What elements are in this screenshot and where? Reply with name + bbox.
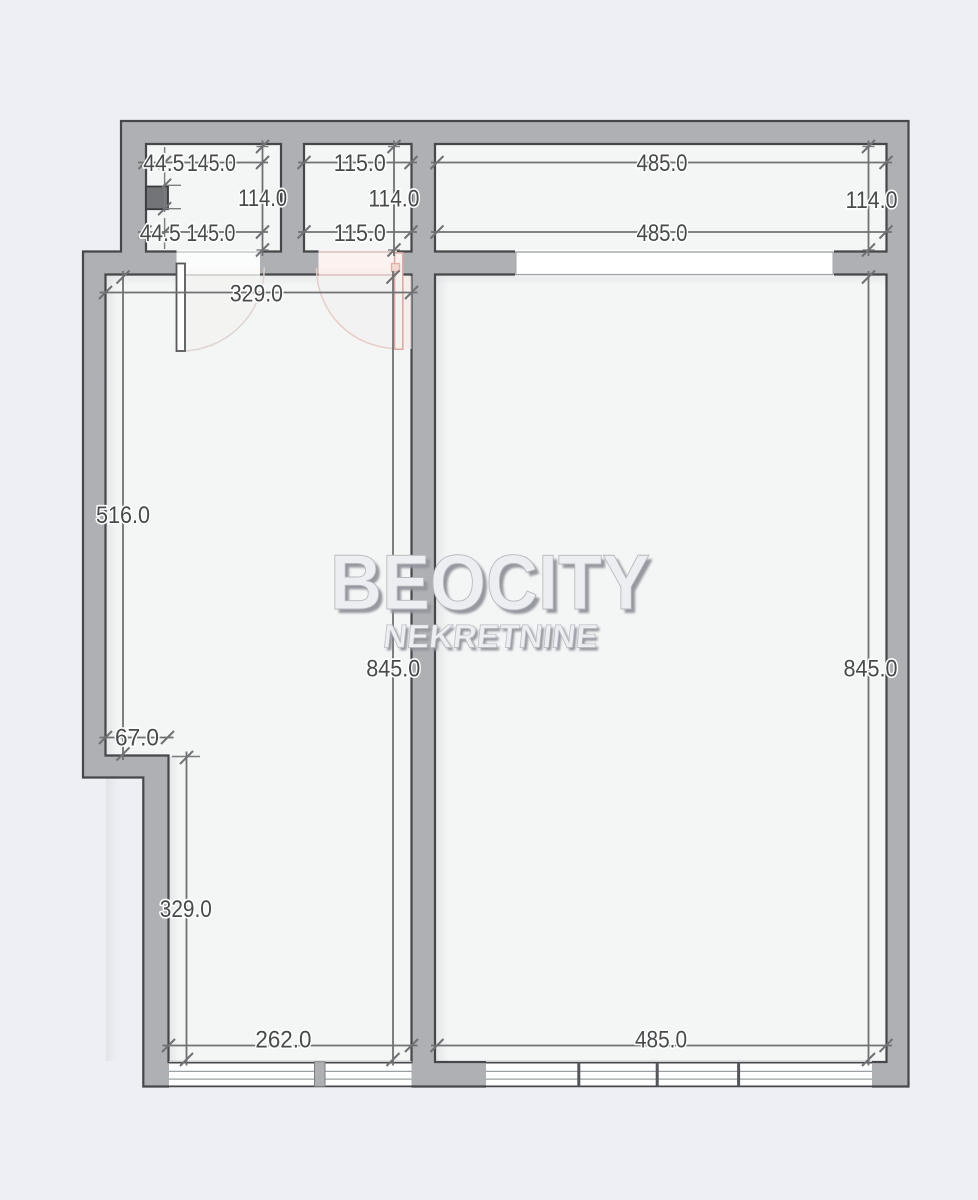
svg-text:485.0: 485.0	[635, 1026, 687, 1053]
svg-text:329.0: 329.0	[230, 281, 283, 308]
svg-text:485.0: 485.0	[637, 220, 688, 247]
svg-text:145.0: 145.0	[187, 150, 236, 177]
svg-text:115.0: 115.0	[334, 150, 386, 177]
svg-text:114.0: 114.0	[846, 187, 898, 214]
svg-text:44.5: 44.5	[143, 150, 184, 177]
svg-text:NEKRETNINE: NEKRETNINE	[381, 619, 599, 656]
svg-text:845.0: 845.0	[844, 656, 898, 683]
svg-text:485.0: 485.0	[637, 150, 688, 177]
svg-text:115.0: 115.0	[334, 220, 386, 247]
svg-text:114.0: 114.0	[368, 186, 419, 213]
svg-text:329.0: 329.0	[160, 896, 212, 923]
svg-text:67.0: 67.0	[115, 725, 159, 752]
svg-text:BEOCITY: BEOCITY	[330, 538, 650, 625]
svg-text:262.0: 262.0	[255, 1026, 311, 1053]
svg-text:114.0: 114.0	[238, 185, 287, 212]
svg-text:145.0: 145.0	[186, 220, 235, 247]
svg-text:516.0: 516.0	[96, 502, 150, 529]
svg-text:845.0: 845.0	[366, 656, 420, 683]
svg-text:44.5: 44.5	[140, 220, 181, 247]
